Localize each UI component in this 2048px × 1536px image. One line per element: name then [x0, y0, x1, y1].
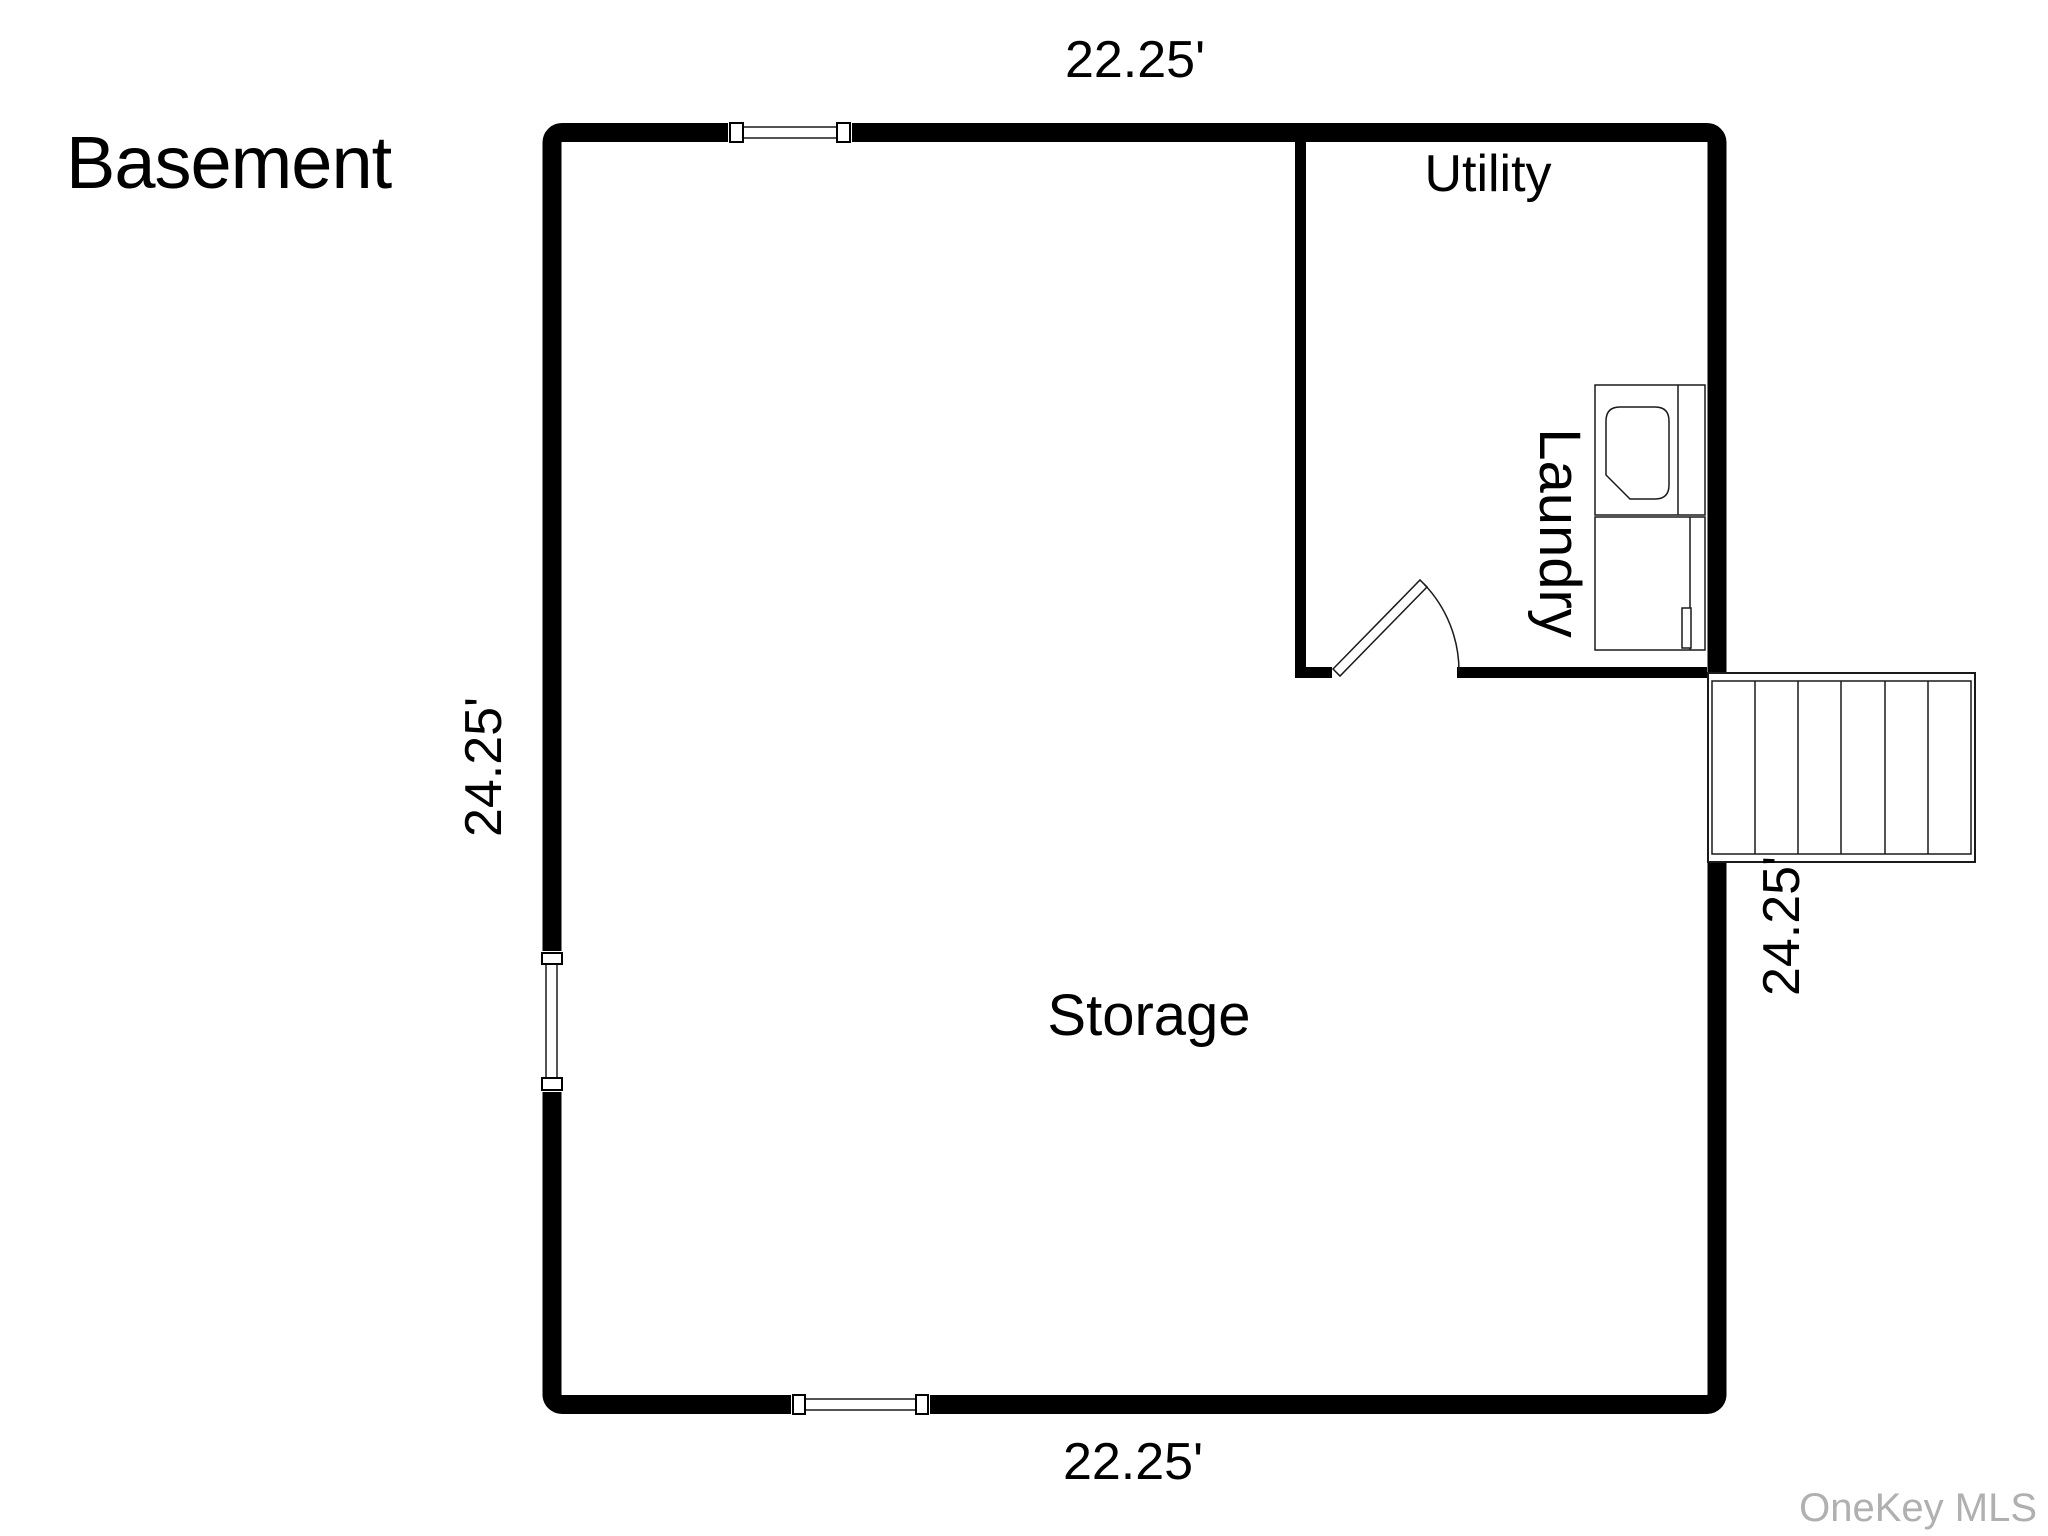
- exterior-wall: [552, 133, 1717, 1405]
- floor-plan-drawing: [0, 0, 2048, 1536]
- dryer-icon: [1595, 517, 1705, 650]
- stairs-icon: [1708, 673, 1975, 862]
- door-icon: [1333, 580, 1459, 676]
- dimension-right: 24.25': [1756, 856, 1808, 996]
- basement-floor-plan: Basement 22.25' 22.25' 24.25' 24.25' Uti…: [0, 0, 2048, 1536]
- utility-bottom-wall: [1457, 667, 1707, 678]
- dimension-bottom: 22.25': [1063, 1436, 1203, 1488]
- utility-bottom-wall-stub: [1295, 667, 1332, 678]
- utility-left-wall: [1295, 142, 1306, 678]
- dimension-top: 22.25': [1065, 34, 1205, 86]
- room-label-laundry: Laundry: [1530, 428, 1588, 638]
- watermark: OneKey MLS: [1799, 1488, 2037, 1528]
- room-label-utility: Utility: [1424, 148, 1551, 200]
- dimension-left: 24.25': [458, 697, 510, 837]
- plan-title: Basement: [66, 126, 391, 200]
- washer-icon: [1595, 385, 1705, 515]
- room-label-storage: Storage: [1047, 987, 1250, 1045]
